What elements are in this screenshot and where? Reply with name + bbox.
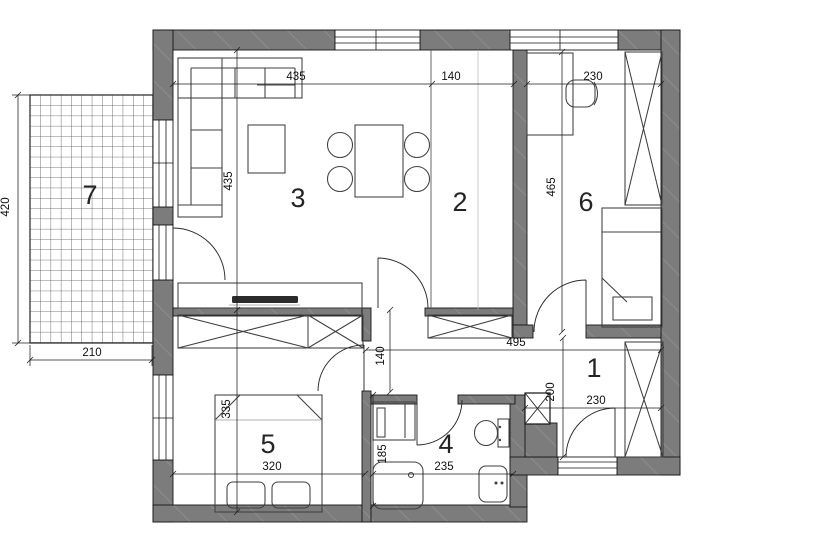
window-left-room5 bbox=[153, 375, 173, 460]
room-label-1: 1 bbox=[586, 353, 601, 383]
bed-room6 bbox=[602, 208, 662, 327]
room-label-5: 5 bbox=[260, 429, 275, 459]
room-label-4: 4 bbox=[438, 429, 453, 459]
window-top-room3 bbox=[335, 30, 420, 50]
wall-kitchen-room6 bbox=[513, 50, 527, 325]
dim-hall-width: 140 bbox=[375, 346, 387, 365]
dining-chair bbox=[405, 167, 430, 192]
dim-hall-length: 495 bbox=[506, 337, 525, 349]
dining-table bbox=[355, 125, 403, 197]
dining-set bbox=[328, 125, 430, 197]
door-arc-room5 bbox=[318, 345, 364, 391]
tv-sideboard bbox=[178, 283, 362, 308]
toilet bbox=[475, 419, 510, 447]
wall-entry-left bbox=[510, 457, 558, 475]
door-arc-room6 bbox=[534, 280, 586, 332]
dim-bath-height: 185 bbox=[377, 444, 389, 463]
sink bbox=[479, 466, 507, 502]
wall-bath-top-left bbox=[371, 395, 417, 404]
hall-closet bbox=[428, 315, 512, 338]
pillow bbox=[227, 482, 265, 508]
washing-machine bbox=[373, 402, 415, 440]
dim-bath-width: 235 bbox=[434, 461, 453, 473]
room-label-2: 2 bbox=[452, 187, 467, 217]
wall-bottom bbox=[153, 505, 527, 522]
closet-room5 bbox=[178, 315, 363, 348]
floor-plan-drawing: 435 140 230 435 465 140 200 230 495 335 … bbox=[0, 0, 834, 556]
tv bbox=[232, 296, 298, 303]
dim-room3-height: 435 bbox=[223, 171, 235, 190]
dining-chair bbox=[328, 133, 353, 158]
pillow bbox=[272, 482, 310, 508]
window-left-room3 bbox=[153, 120, 173, 207]
dim-terrace-width: 210 bbox=[82, 347, 101, 359]
dim-room3-width: 435 bbox=[286, 71, 305, 83]
wardrobe-room6 bbox=[625, 52, 662, 205]
wall-left-1 bbox=[153, 30, 173, 120]
door-arc-room3 bbox=[378, 258, 428, 308]
coffee-table bbox=[248, 125, 285, 173]
floor-plan: 435 140 230 435 465 140 200 230 495 335 … bbox=[0, 0, 834, 556]
room-label-7: 7 bbox=[82, 180, 97, 210]
wall-left-3 bbox=[153, 280, 173, 375]
wall-shaft-block bbox=[525, 423, 557, 457]
shower bbox=[373, 462, 423, 509]
terrace bbox=[30, 95, 153, 343]
wall-top-1 bbox=[153, 30, 335, 50]
window-top-room6 bbox=[510, 30, 618, 50]
wall-bath-top-right bbox=[458, 395, 515, 404]
room-label-3: 3 bbox=[290, 183, 305, 213]
dining-chair bbox=[405, 133, 430, 158]
sofa bbox=[178, 58, 302, 217]
entrance-threshold bbox=[558, 457, 617, 475]
interior-walls bbox=[173, 50, 661, 522]
dim-room6-height: 465 bbox=[546, 177, 558, 196]
wall-room5-bath bbox=[362, 391, 371, 522]
wall-right bbox=[661, 30, 680, 475]
wall-entry-right bbox=[617, 457, 680, 475]
dim-kitchen-width: 140 bbox=[441, 71, 460, 83]
door-arc-entrance bbox=[566, 408, 615, 457]
dim-entry-depth: 200 bbox=[545, 382, 557, 401]
wall-left-2 bbox=[153, 207, 173, 225]
entry-wardrobe bbox=[625, 342, 663, 457]
terrace-grid bbox=[30, 95, 153, 343]
wall-top-2 bbox=[420, 30, 510, 50]
dim-entry-width: 230 bbox=[586, 395, 605, 407]
dim-room6-width: 230 bbox=[583, 71, 602, 83]
door-arc-terrace bbox=[173, 228, 225, 280]
dim-room5-height: 335 bbox=[221, 399, 233, 418]
dim-terrace-height: 420 bbox=[0, 197, 12, 216]
room-label-6: 6 bbox=[578, 187, 593, 217]
dining-chair bbox=[328, 167, 353, 192]
terrace-door-opening bbox=[153, 225, 173, 280]
dim-room5-width: 320 bbox=[262, 461, 281, 473]
